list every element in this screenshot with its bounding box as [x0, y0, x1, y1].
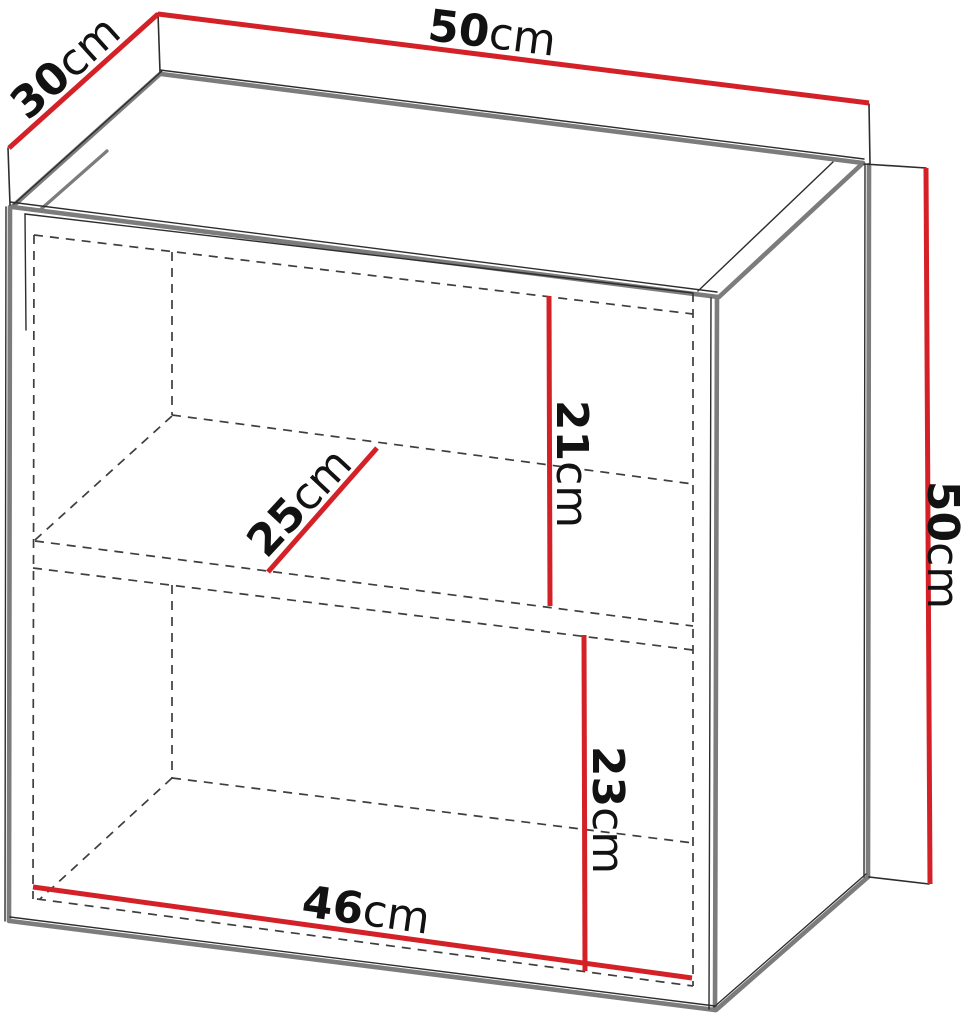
diagram-canvas: [0, 0, 970, 1020]
outline-front-right-vertical: [709, 298, 711, 1009]
dim-value-lower-section: 23: [582, 746, 633, 807]
outline-opening-left: [25, 214, 26, 330]
outline-top-back: [160, 70, 864, 159]
edge-right-outer-vertical: [868, 165, 869, 877]
tick-top-left-front: [8, 148, 10, 205]
outline-top-front: [10, 202, 717, 292]
dim-label-height: 50cm: [920, 481, 964, 609]
outline-right-panel-inner: [698, 162, 833, 291]
outline-left-vertical: [5, 207, 6, 921]
dim-value-height: 50: [917, 481, 968, 542]
hidden-shelf-front-bottom-edge: [33, 568, 693, 650]
cabinet-edge-outlines: [5, 70, 866, 1009]
dim-unit-height: cm: [917, 542, 968, 609]
edge-top-left-inner: [40, 151, 107, 210]
dimension-ticks: [8, 13, 929, 884]
dim-unit-top-width: cm: [486, 8, 559, 67]
outline-right-outer-vertical: [864, 165, 865, 877]
dim-value-upper-section: 21: [546, 400, 597, 461]
tick-top-right: [869, 104, 870, 163]
dim-value-interior-width: 46: [299, 876, 367, 935]
dim-unit-lower-section: cm: [582, 807, 633, 874]
hidden-bottom-left-edge: [40, 778, 172, 899]
tick-right-lower: [869, 877, 929, 884]
edge-top-right-diagonal: [719, 163, 863, 297]
cabinet-outer-edges: [9, 74, 869, 1010]
hidden-shelf-back-edge: [172, 415, 693, 484]
edge-left-vertical: [9, 207, 10, 921]
hidden-shelf-left-edge: [35, 416, 172, 540]
dim-unit-upper-section: cm: [546, 461, 597, 528]
hidden-interior-left-vertical: [33, 235, 34, 899]
hidden-shelf-front-top-edge: [35, 541, 693, 626]
cabinet-dimension-diagram: 50cm 30cm 50cm 21cm 25cm 23cm 46cm: [0, 0, 970, 1020]
dimension-lines: [9, 14, 930, 978]
tick-top-left-back: [158, 13, 160, 72]
outline-right-bottom-diagonal: [714, 874, 866, 1007]
tick-right-upper: [864, 164, 926, 168]
dim-value-top-width: 50: [425, 0, 492, 58]
edge-right-bottom-diagonal: [716, 877, 868, 1010]
outline-opening-top: [25, 214, 693, 293]
dim-label-upper-section: 21cm: [549, 400, 593, 528]
dim-unit-interior-width: cm: [360, 885, 434, 945]
edge-front-right-vertical: [715, 298, 717, 1010]
dim-label-lower-section: 23cm: [585, 746, 629, 874]
